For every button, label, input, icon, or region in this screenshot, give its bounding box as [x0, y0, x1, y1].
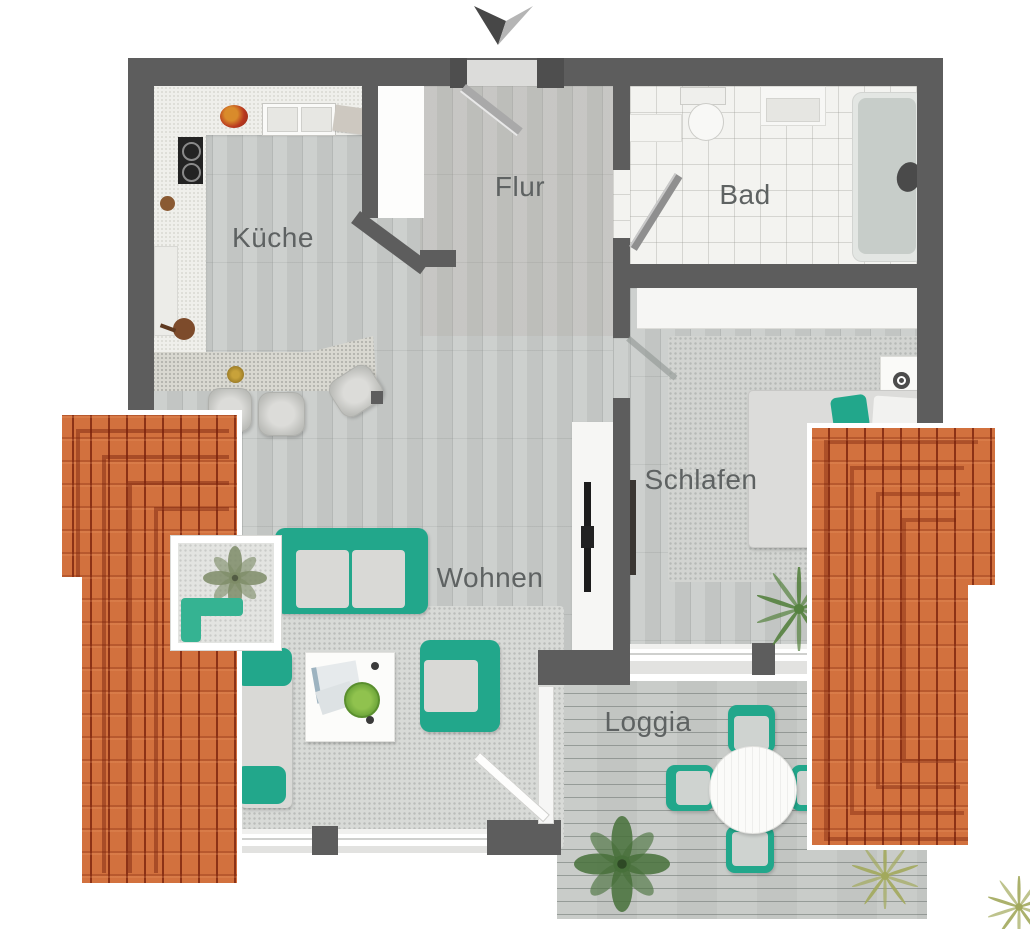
- room-label-kueche: Küche: [232, 222, 314, 254]
- wall-living-south-corner: [487, 820, 561, 855]
- sofa-cushion: [352, 550, 405, 608]
- vanity-basin: [766, 98, 820, 122]
- bedroom-door-threshold: [613, 338, 630, 400]
- table-knob: [366, 716, 374, 724]
- entry-threshold: [467, 60, 537, 86]
- loggia-leaf-plant: [574, 816, 670, 912]
- nightstand-knob: [893, 372, 910, 389]
- window-living-south: [237, 829, 487, 853]
- loggia-grass-plant: [852, 843, 918, 909]
- wardrobe: [637, 288, 923, 329]
- armchair-cushion: [424, 660, 478, 712]
- window-pier-living: [312, 826, 338, 855]
- wall-closet: [362, 86, 378, 218]
- wall-left: [128, 58, 154, 420]
- wall-closet-end: [420, 250, 456, 267]
- counter-jar: [160, 196, 175, 211]
- room-label-schlafen: Schlafen: [645, 464, 758, 496]
- bar-post: [371, 391, 383, 404]
- sofa-cushion: [296, 550, 349, 608]
- sink-basin: [267, 107, 298, 132]
- cooktop-burner: [182, 142, 201, 161]
- loggia-round-table: [709, 746, 797, 834]
- loggia-chair-seat: [734, 716, 769, 750]
- toilet-bowl: [688, 103, 724, 141]
- corner-grass-plant: [988, 876, 1030, 929]
- entry-door-jamb: [450, 58, 467, 88]
- sink-basin: [301, 107, 332, 132]
- wall-sofa-armrest: [236, 766, 286, 804]
- room-label-flur: Flur: [495, 171, 545, 203]
- tv-box: [581, 526, 594, 548]
- wall-bath-west: [613, 86, 630, 170]
- wall-bedroom-west: [613, 398, 630, 685]
- loggia-door-frame: [538, 686, 554, 824]
- closet-interior: [378, 86, 424, 218]
- wall-bedroom-west-upper: [613, 288, 630, 338]
- dormer-bench-leg: [181, 610, 201, 642]
- room-label-bad: Bad: [719, 179, 770, 211]
- pan: [173, 318, 195, 340]
- wall-bath-south: [613, 264, 943, 288]
- fruit-bowl: [220, 105, 248, 128]
- bedroom-tv-panel: [629, 480, 636, 575]
- wall-right: [917, 58, 943, 434]
- floor-plan: Küche Flur Bad Schlafen Wohnen Loggia: [0, 0, 1030, 929]
- loggia-chair-seat: [676, 771, 710, 805]
- table-knob: [371, 662, 379, 670]
- bar-item: [227, 366, 244, 383]
- room-label-loggia: Loggia: [604, 706, 691, 738]
- loggia-chair-seat: [732, 832, 768, 866]
- bar-stool: [258, 392, 305, 436]
- wall-sofa-armrest: [236, 648, 292, 686]
- room-label-wohnen: Wohnen: [437, 562, 544, 594]
- bath-door-threshold: [613, 168, 630, 242]
- north-arrow-icon: [468, 2, 538, 48]
- cooktop-burner: [182, 163, 201, 182]
- bath-cabinet: [628, 114, 682, 142]
- entry-door-jamb: [537, 58, 564, 88]
- plate: [344, 682, 380, 718]
- wall-loggia-corner: [538, 650, 630, 685]
